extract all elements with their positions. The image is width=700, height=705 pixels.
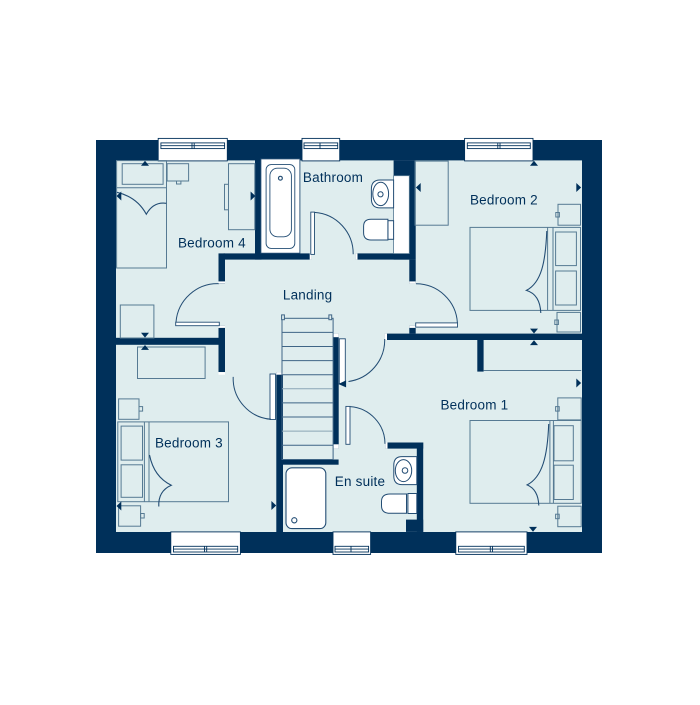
svg-text:Bedroom 2: Bedroom 2 — [470, 192, 538, 207]
svg-text:Bedroom 4: Bedroom 4 — [178, 236, 246, 251]
svg-text:Bedroom 1: Bedroom 1 — [440, 397, 508, 412]
svg-text:Bedroom 3: Bedroom 3 — [155, 436, 223, 451]
svg-text:En suite: En suite — [335, 474, 385, 489]
svg-text:Landing: Landing — [283, 288, 332, 303]
svg-text:Bathroom: Bathroom — [303, 170, 363, 185]
